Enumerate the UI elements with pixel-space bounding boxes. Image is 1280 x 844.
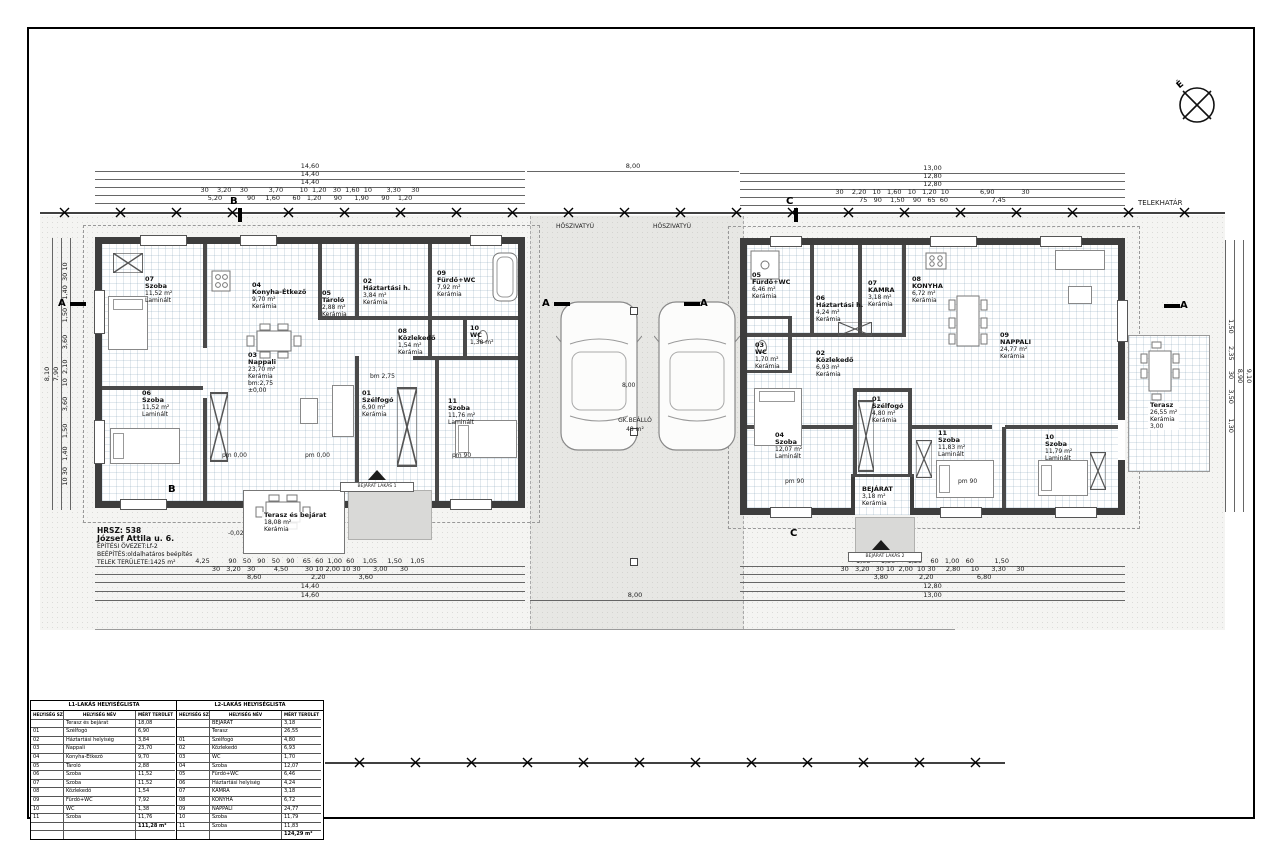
address: József Attila u. 6. [97, 535, 277, 543]
pm-note: pm 90 [958, 478, 977, 485]
pm-note: pm 0,00 [305, 452, 330, 459]
room-label-l2-06: 06Háztartási h. 4,24 m²Kerámia [816, 295, 863, 323]
bed-icon [110, 428, 180, 464]
table-row: 11Szoba11,76 [31, 813, 177, 822]
sofa-icon [1055, 250, 1105, 270]
table-row: 09Fürdő+WC7,92 [31, 796, 177, 805]
wardrobe-icon [1090, 452, 1106, 490]
bathtub-icon [492, 252, 518, 302]
section-marker-b: B [230, 196, 238, 207]
room-label-l1-02: 02Háztartási h. 3,84 m²Kerámia [363, 278, 410, 306]
dim-row: 12,80 [740, 583, 1125, 592]
room-label-l1-03: 03Nappali 23,70 m²Kerámia bm:2,75±0,00 [248, 352, 276, 394]
parking-dim: 8,00 [622, 382, 635, 389]
table-row: 06Háztartási helyiség4,24 [177, 779, 323, 788]
table-body: BEJÁRAT3,18 Terasz26,55 01Szélfogó4,80 0… [177, 719, 323, 831]
window-icon [940, 507, 982, 518]
table-title: L1-LAKÁS HELYISÉGLISTA [31, 701, 177, 711]
floor-plan-sheet: É TELEKHATÁR 14,60 14,40 14,40 30 3,20 3… [0, 0, 1280, 844]
room-label-l2-07: 07KAMRA 3,18 m²Kerámia [868, 280, 895, 308]
dim-row: 10 30 1,40 1,50 3,60 10 2,10 3,60 1,50 1… [62, 238, 71, 510]
section-marker-b: B [168, 484, 176, 495]
entry-arrow-icon [368, 470, 386, 480]
window-icon [120, 499, 167, 510]
dim-row: 14,40 [95, 583, 525, 592]
sofa-icon [332, 385, 354, 437]
table-row: 10Szoba11,79 [177, 813, 323, 822]
section-marker-a: A [1180, 300, 1188, 311]
table-row: 07KAMRA3,18 [177, 787, 323, 796]
room-label-l1-05: 05Tároló 2,88 m²Kerámia [322, 290, 347, 318]
table-row: 01Szélfogó6,90 [31, 727, 177, 736]
dim-row: 8,00 [527, 163, 739, 172]
dim-col-left: 8,10 7,90 10 30 1,40 1,50 3,60 10 2,10 3… [44, 238, 71, 510]
dim-row: 7,90 [53, 238, 62, 510]
siting: BEÉPÍTÉS:oldalhatáros beépítés [97, 551, 277, 559]
table-row: Terasz26,55 [177, 727, 323, 736]
window-icon [1040, 236, 1082, 247]
window-icon [94, 420, 105, 464]
bm-note: bm 2,75 [370, 373, 395, 380]
terrace-l2-label: Terasz 26,55 m² Kerámia 3,00 [1148, 402, 1179, 430]
coffee-table-icon [1068, 286, 1092, 304]
room-label-l2-09: 09NAPPALI 24,77 m²Kerámia [1000, 332, 1031, 360]
dim-row: 13,00 [740, 592, 1125, 601]
boundary-fence-bottom [325, 757, 1005, 769]
room-label-l1-04: 04Konyha-Étkező 9,70 m²Kerámia [252, 282, 306, 310]
post-marker [630, 558, 638, 566]
wardrobe-icon [397, 387, 417, 467]
entry-steps-l1 [348, 490, 432, 540]
room-label-l1-07: 07Szoba 11,52 m²Laminált [145, 276, 172, 304]
table-body: Terasz és bejárat18,08 01Szélfogó6,90 02… [31, 719, 177, 822]
table-row: 06Szoba11,52 [31, 770, 177, 779]
table-row: 10WC1,38 [31, 805, 177, 814]
dim-row: 9,10 [1243, 240, 1252, 512]
room-label-l2-01: 01Szélfogó 4,80 m²Kerámia [872, 396, 904, 424]
room-label-l2-02: 02Közlekedő 6,93 m²Kerámia [816, 350, 853, 378]
window-icon [470, 235, 502, 246]
table-row: 03Nappali23,70 [31, 744, 177, 753]
window-icon [1055, 507, 1097, 518]
pm-note: pm 0,00 [222, 452, 247, 459]
window-icon [140, 235, 187, 246]
table-row: 02Közlekedő6,93 [177, 744, 323, 753]
window-icon [240, 235, 277, 246]
parking-label: GK.BEÁLLÓ [612, 417, 658, 424]
room-label-l1-09: 09Fürdő+WC 7,92 m²Kerámia [437, 270, 475, 298]
table-header: HELYISÉG SZÁMHELYISÉG NÉVMÉRT TERÜLET [177, 711, 323, 719]
section-marker-a: A [58, 298, 66, 309]
window-icon [1117, 300, 1128, 342]
section-marker-a: A [700, 298, 708, 309]
pm-note: pm 90 [452, 452, 471, 459]
stove-icon [211, 270, 231, 292]
table-total-row: 124,29 m² [177, 830, 323, 839]
table-row: 09NAPPALI24,77 [177, 805, 323, 814]
dim-row: 1,50 2,35 30 3,50 1,30 [1225, 240, 1234, 512]
table-row: 01Szélfogó4,80 [177, 736, 323, 745]
room-label-l1-01: 01Szélfogó 6,90 m²Kerámia [362, 390, 394, 418]
dim-row: 5,20 90 1,60 60 1,20 90 1,90 90 1,20 [95, 195, 525, 204]
window-icon [770, 507, 812, 518]
table-row: BEJÁRAT3,18 [177, 719, 323, 728]
parking-area: 48 m² [612, 426, 658, 433]
terrace-door-opening [1118, 420, 1125, 460]
yard-edge-line [95, 629, 955, 630]
room-label-l2-10: 10Szoba 11,79 m²Laminált [1045, 434, 1072, 462]
section-marker-c: C [790, 528, 797, 539]
dim-row: 14,60 [95, 592, 525, 601]
room-label-l2-05: 05Fürdő+WC 6,46 m²Kerámia [752, 272, 790, 300]
room-label-l2-03: 03WC 1,70 m²Kerámia [755, 342, 780, 370]
table-row: 03WC1,70 [177, 753, 323, 762]
table-row: 05Fürdő+WC6,46 [177, 770, 323, 779]
dim-row: 75 90 1,50 90 65 60 7,45 [740, 197, 1125, 206]
section-marker-a: A [542, 298, 550, 309]
car-icon [654, 298, 740, 454]
room-label-l1-08: 08Közlekedő 1,54 m²Kerámia [398, 328, 435, 356]
room-label-l2-04: 04Szoba 12,07 m²Laminált [775, 432, 802, 460]
north-arrow-icon: É [1168, 74, 1222, 130]
dim-row: 8,60 2,20 3,60 [95, 574, 525, 583]
room-label-l2-08: 08KONYHA 6,72 m²Kerámia [912, 276, 943, 304]
coffee-table-icon [300, 398, 318, 424]
post-marker [630, 307, 638, 315]
table-row: Terasz és bejárat18,08 [31, 719, 177, 728]
dim-row: 8,00 [530, 592, 740, 601]
table-header: HELYISÉG SZÁMHELYISÉG NÉVMÉRT TERÜLET [31, 711, 177, 719]
section-marker-c: C [786, 196, 793, 207]
room-label-l2-bejarat: BEJÁRAT 3,18 m²Kerámia [862, 486, 893, 507]
table-row: 11Szoba11,83 [177, 822, 323, 831]
table-row: 08Közlekedő1,54 [31, 787, 177, 796]
entry-label-l2: BEJÁRAT LAKÁS 2 [848, 552, 922, 562]
plot-area: TELEK TERÜLETE:1425 m² [97, 559, 277, 567]
dim-row: 3,80 2,20 6,80 [740, 574, 1125, 583]
entry-label-l1: BEJÁRAT LAKÁS 1 [340, 482, 414, 492]
table-row: 02Háztartási helyiség3,84 [31, 736, 177, 745]
table-empty-row [31, 830, 177, 839]
boundary-fence-top [40, 207, 1225, 219]
zoning: ÉPÍTÉSI ÖVEZET:Lf-2 [97, 543, 277, 551]
table-row: 04Szoba12,07 [177, 762, 323, 771]
table-row: 04Konyha-Étkező9,70 [31, 753, 177, 762]
table-row: 05Tároló2,88 [31, 762, 177, 771]
room-label-l1-06: 06Szoba 11,52 m²Laminált [142, 390, 169, 418]
room-label-l1-10: 10WC 1,38 m² [470, 325, 494, 346]
bed-icon [1038, 460, 1088, 496]
room-table-l2: L2-LAKÁS HELYISÉGLISTA HELYISÉG SZÁMHELY… [176, 700, 324, 840]
window-icon [94, 290, 105, 334]
pm-note: pm 90 [785, 478, 804, 485]
dim-row: 8,10 [44, 238, 53, 510]
north-label: É [1174, 78, 1186, 91]
project-info-block: HRSZ: 538 József Attila u. 6. ÉPÍTÉSI ÖV… [97, 527, 277, 567]
stove-icon [925, 252, 947, 270]
dim-col-right: 9,10 8,90 1,50 2,35 30 3,50 1,30 [1225, 240, 1252, 512]
room-table-l1: L1-LAKÁS HELYISÉGLISTA HELYISÉG SZÁMHELY… [30, 700, 178, 840]
wardrobe-icon [838, 322, 872, 336]
terrace-table-icon [1140, 340, 1180, 402]
window-icon [930, 236, 977, 247]
dining-table-icon [948, 282, 988, 360]
table-total-row: 111,28 m² [31, 822, 177, 831]
wardrobe-icon [916, 440, 932, 478]
heatpump-label: HŐSZIVATYÚ [653, 223, 691, 230]
window-icon [770, 236, 802, 247]
dim-row: 8,90 [1234, 240, 1243, 512]
table-title: L2-LAKÁS HELYISÉGLISTA [177, 701, 323, 711]
bed-icon [108, 296, 148, 350]
table-row: 08KONYHA6,72 [177, 796, 323, 805]
wardrobe-icon [113, 253, 143, 273]
room-label-l1-11: 11Szoba 11,76 m²Laminált [448, 398, 475, 426]
table-row: 07Szoba11,52 [31, 779, 177, 788]
heatpump-label: HŐSZIVATYÚ [556, 223, 594, 230]
entry-arrow-icon [872, 540, 890, 550]
room-label-l2-11: 11Szoba 11,83 m²Laminált [938, 430, 965, 458]
telekhatar-label: TELEKHATÁR [1138, 199, 1183, 207]
window-icon [450, 499, 492, 510]
